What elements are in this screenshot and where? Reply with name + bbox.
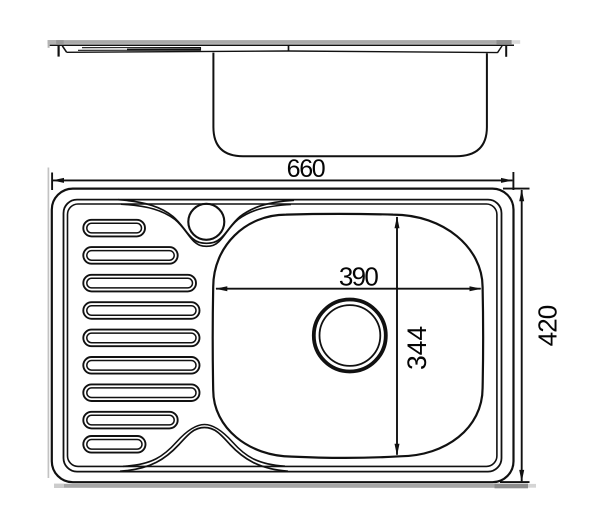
svg-text:660: 660 — [287, 155, 325, 183]
svg-text:344: 344 — [402, 326, 432, 370]
svg-text:390: 390 — [339, 261, 379, 291]
svg-text:420: 420 — [533, 305, 563, 346]
